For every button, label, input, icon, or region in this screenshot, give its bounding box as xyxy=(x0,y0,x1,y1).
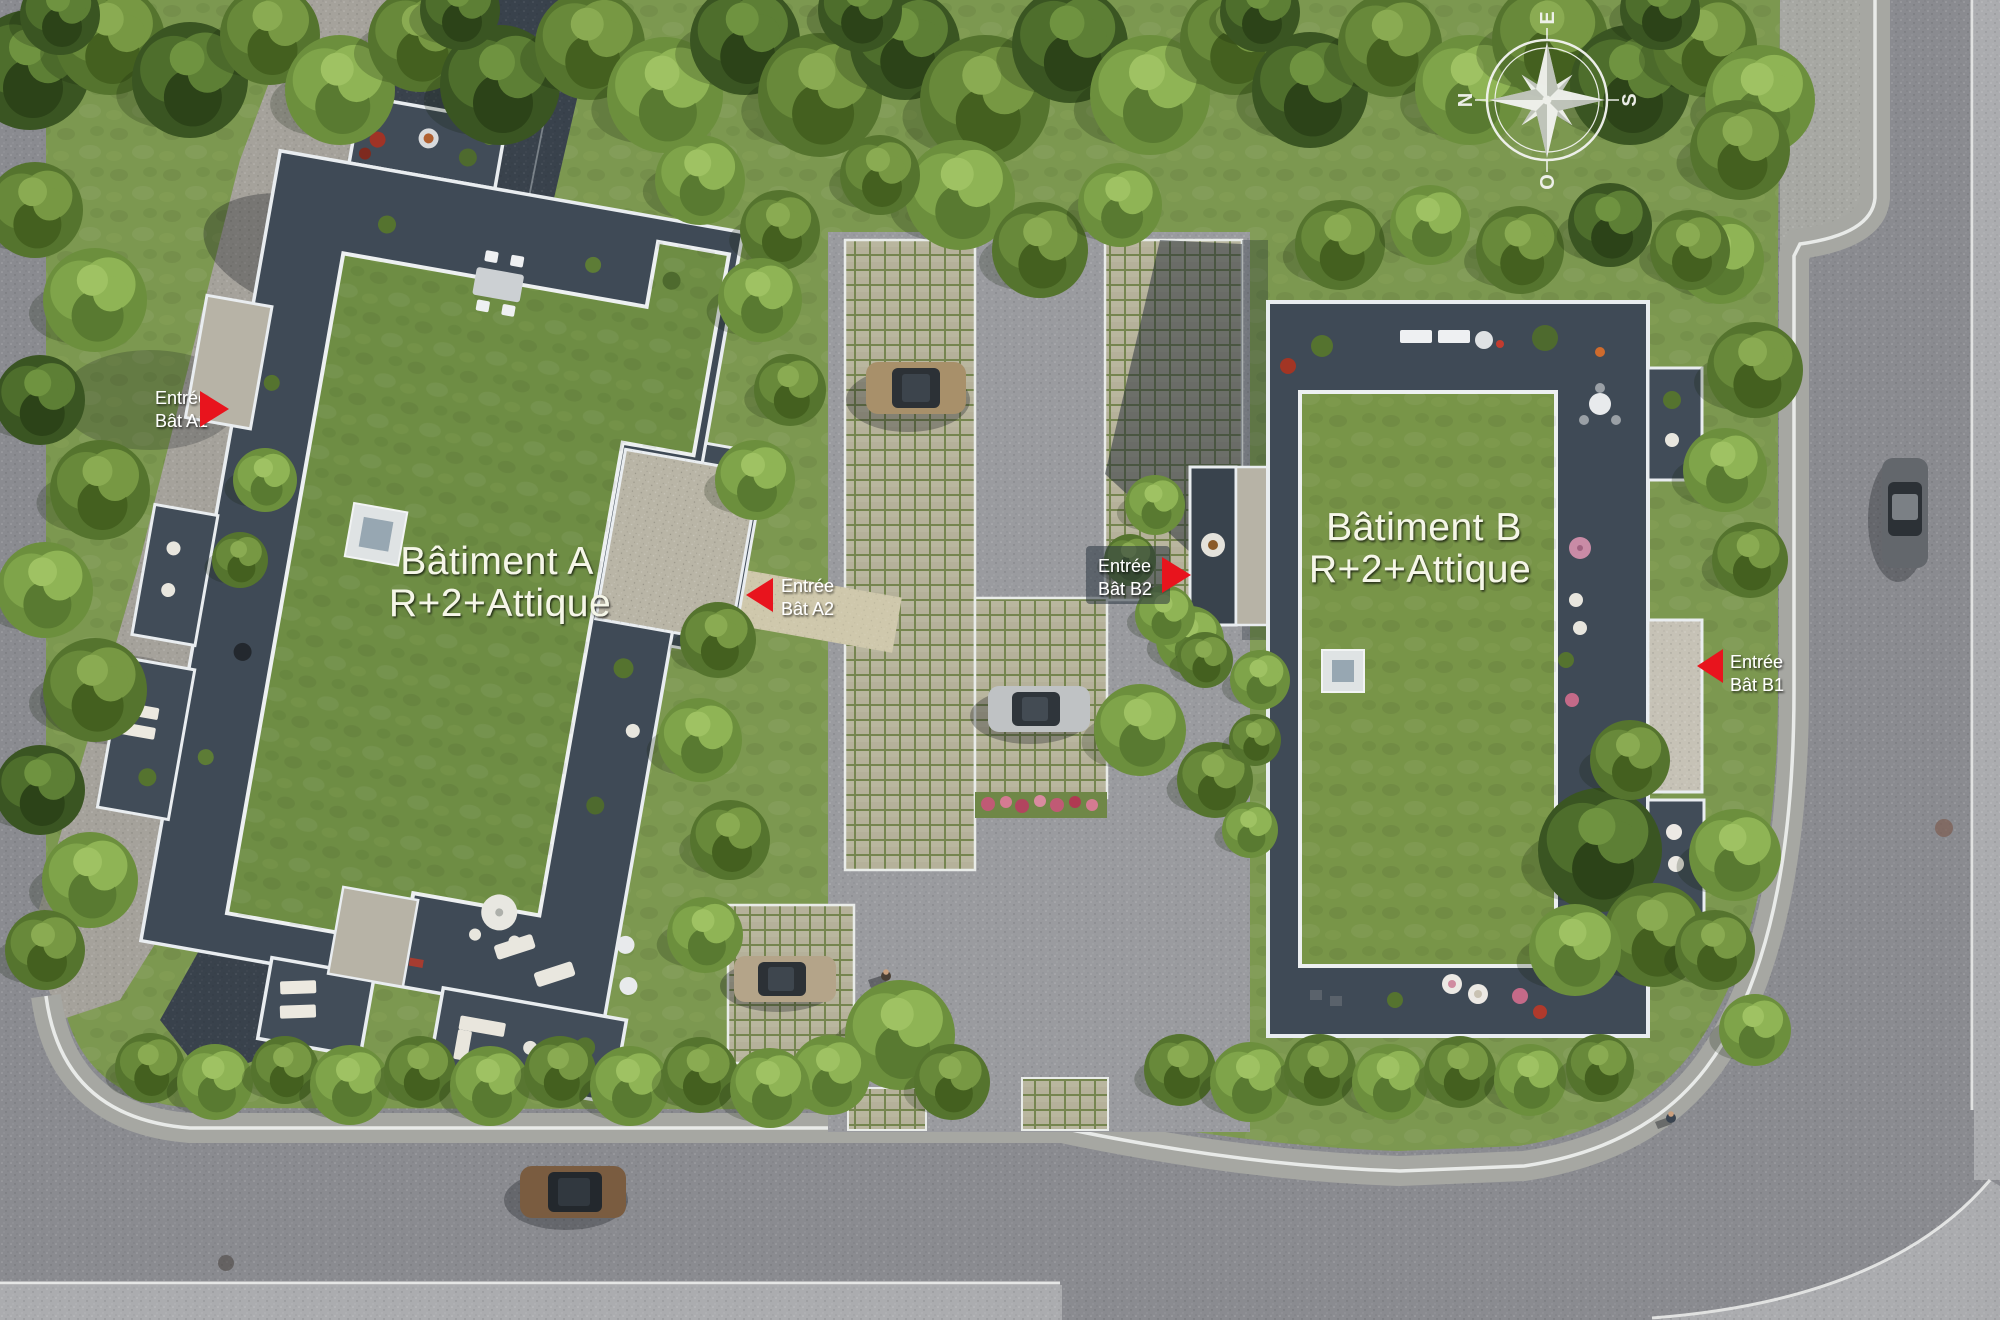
compass-west-letter: O xyxy=(1537,174,1559,190)
car xyxy=(504,1166,628,1230)
building-a-label: Bâtiment A R+2+Attique xyxy=(389,540,611,625)
compass-north-letter: N xyxy=(1455,93,1477,107)
entrance-b1-label-line2: Bât B1 xyxy=(1730,675,1784,695)
person xyxy=(1595,347,1605,357)
compass-south-letter: S xyxy=(1619,93,1641,106)
site-plan: E S O N Bâtiment A R+2+Attique Bâtiment … xyxy=(0,0,2000,1320)
entrance-b1-label-line1: Entrée xyxy=(1730,652,1783,672)
skylight xyxy=(1332,660,1354,682)
entrance-a2-label-line2: Bât A2 xyxy=(781,599,834,619)
building-b-name: Bâtiment B xyxy=(1326,506,1522,549)
entrance-b2-label-line1: Entrée xyxy=(1098,556,1151,576)
entrance-walkway-b2 xyxy=(1236,467,1268,625)
flower-bed xyxy=(975,792,1107,818)
car xyxy=(1868,458,1928,582)
entrance-a2-label-line1: Entrée xyxy=(781,576,834,596)
site-plan-rendering: E S O N Bâtiment A R+2+Attique Bâtiment … xyxy=(0,0,2000,1320)
compass-east-letter: E xyxy=(1537,11,1559,24)
building-b-label: Bâtiment B R+2+Attique xyxy=(1309,506,1531,591)
entrance-b2-label-line2: Bât B2 xyxy=(1098,579,1152,599)
skylight xyxy=(359,517,394,552)
building-a-levels: R+2+Attique xyxy=(389,582,611,625)
car xyxy=(720,956,836,1012)
manhole-cover xyxy=(1935,819,1953,837)
manhole-cover xyxy=(218,1255,234,1271)
building-a-name: Bâtiment A xyxy=(400,540,594,583)
building-b-levels: R+2+Attique xyxy=(1309,548,1531,591)
